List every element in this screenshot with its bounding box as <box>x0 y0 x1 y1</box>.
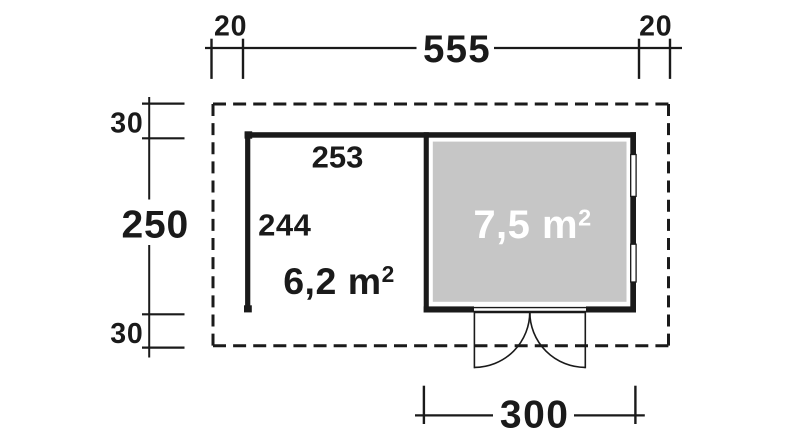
svg-text:20: 20 <box>639 11 672 43</box>
svg-text:300: 300 <box>500 393 570 436</box>
svg-text:253: 253 <box>312 139 364 174</box>
svg-text:555: 555 <box>423 28 491 71</box>
svg-text:244: 244 <box>258 207 311 242</box>
svg-text:30: 30 <box>110 107 143 139</box>
svg-text:7,5 m2: 7,5 m2 <box>473 203 591 247</box>
svg-text:30: 30 <box>110 318 143 350</box>
svg-text:20: 20 <box>214 11 247 43</box>
svg-text:250: 250 <box>122 204 189 247</box>
svg-text:6,2 m2: 6,2 m2 <box>283 260 395 302</box>
